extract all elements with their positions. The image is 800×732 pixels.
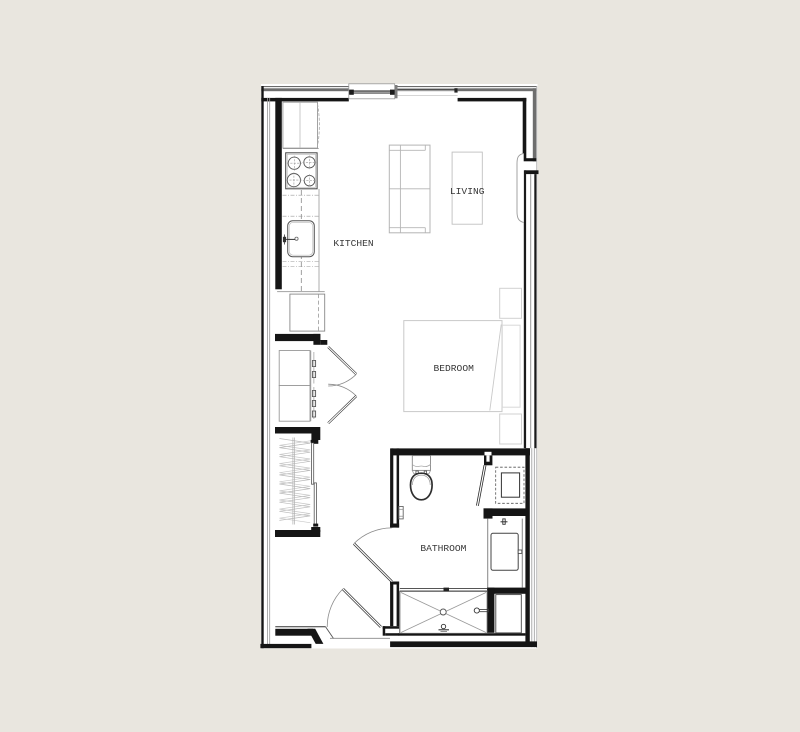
svg-text:LIVING: LIVING [450,186,485,197]
svg-text:BEDROOM: BEDROOM [434,363,475,374]
svg-text:BATHROOM: BATHROOM [420,543,466,554]
svg-text:KITCHEN: KITCHEN [333,238,373,249]
